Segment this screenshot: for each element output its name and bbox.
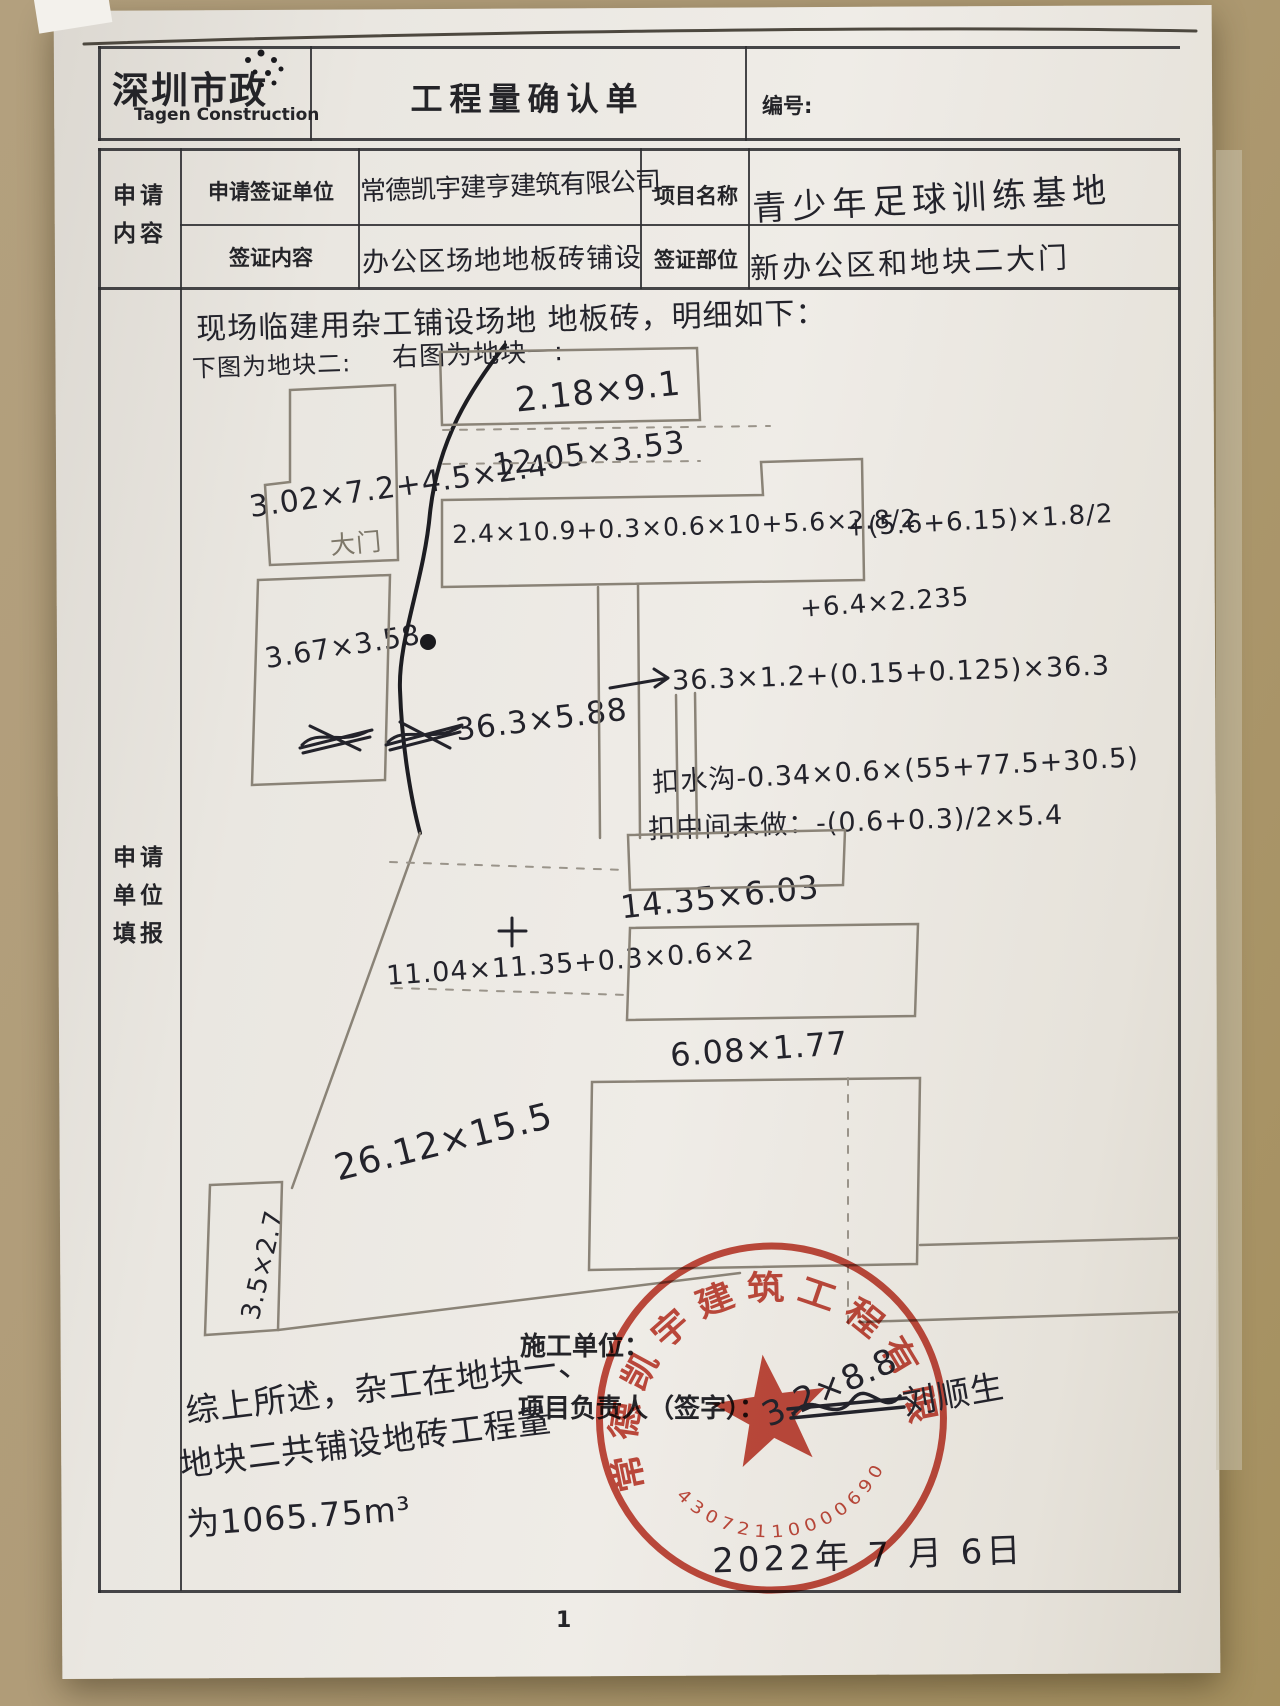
photographed-form: 深圳市政 Tagen Construction 工程量确认单 编号: 申请 内容…: [0, 0, 1280, 1706]
fill-label-line3: 填报: [100, 914, 180, 948]
visa-part-label: 签证部位: [644, 244, 748, 274]
section-label-line2: 内容: [100, 214, 180, 248]
form-number-label: 编号:: [762, 90, 812, 120]
table-label-column-divider: [180, 148, 182, 1591]
visa-content-label: 签证内容: [186, 242, 356, 272]
table-border-right: [1178, 148, 1181, 1593]
header-border-bottom: [98, 138, 1180, 141]
underlying-page-edge: [1216, 150, 1242, 1470]
table-border-top: [98, 148, 1180, 151]
apply-unit-label: 申请签证单位: [186, 176, 356, 206]
table-row-divider-1: [180, 224, 1178, 226]
section-label-line1: 申请: [100, 176, 180, 210]
visa-content-value: 办公区场地地板砖铺设: [362, 236, 643, 280]
table-row-divider-2: [98, 287, 1180, 290]
fill-label-line2: 单位: [100, 876, 180, 910]
fill-label-line1: 申请: [100, 838, 180, 872]
svg-text:43072110000690: 43072110000690: [670, 1455, 899, 1557]
company-logo-subtext: Tagen Construction: [134, 105, 319, 125]
left-plot-caption: 下图为地块二:: [191, 343, 351, 384]
header-border-top: [98, 46, 1180, 49]
gate-label: 大门: [329, 522, 384, 562]
table-divider-v1: [358, 148, 360, 289]
stamp-serial-number: 43072110000690: [670, 1455, 899, 1557]
header-divider-2: [745, 46, 747, 141]
header-border-left: [98, 46, 101, 141]
right-plot-caption: 右图为地块一:: [391, 331, 564, 374]
form-title: 工程量确认单: [310, 74, 745, 120]
page-number: 1: [556, 1608, 571, 1633]
